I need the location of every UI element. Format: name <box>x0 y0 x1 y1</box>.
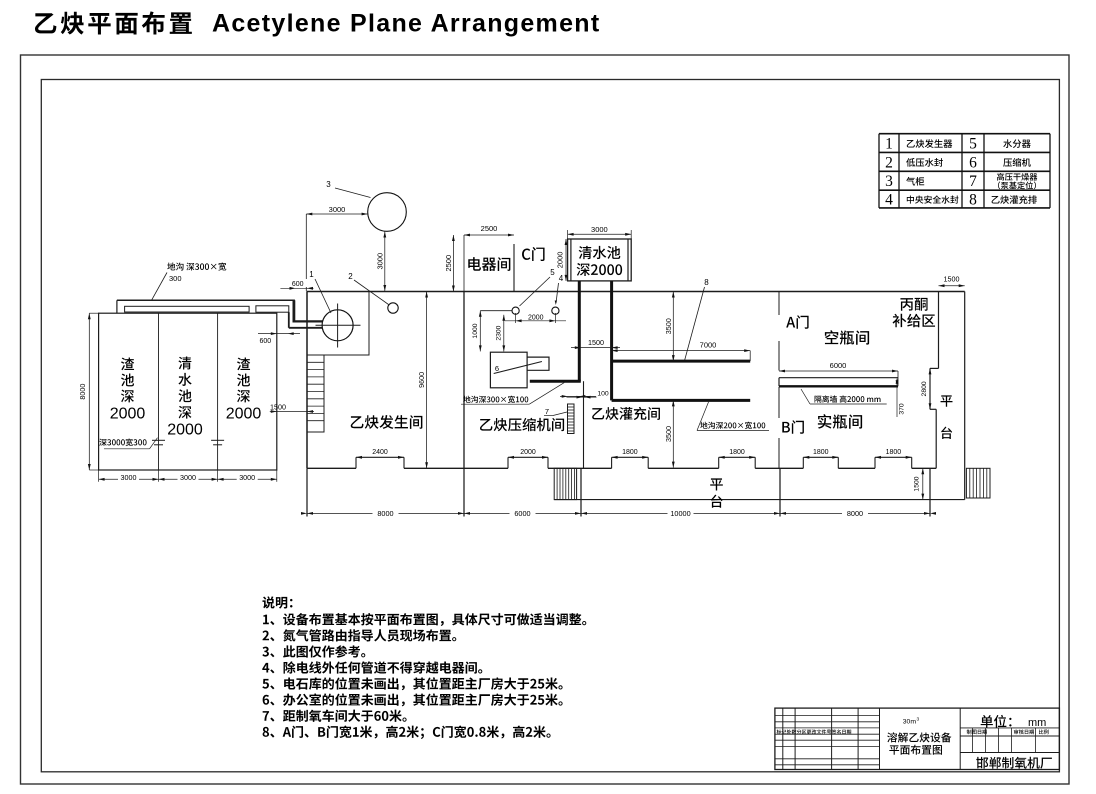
svg-text:mm: mm <box>1028 717 1046 729</box>
svg-text:6: 6 <box>495 364 499 373</box>
svg-text:3: 3 <box>885 173 893 190</box>
svg-text:8: 8 <box>969 192 977 209</box>
svg-text:8: 8 <box>704 278 709 287</box>
svg-text:4: 4 <box>559 274 564 283</box>
svg-text:2000: 2000 <box>528 314 544 321</box>
svg-text:370: 370 <box>899 403 906 415</box>
svg-text:Acetylene Plane Arrangement: Acetylene Plane Arrangement <box>212 10 600 38</box>
svg-text:8000: 8000 <box>377 509 393 518</box>
svg-text:3500: 3500 <box>664 426 673 442</box>
svg-text:2500: 2500 <box>481 224 498 233</box>
svg-text:2000: 2000 <box>556 252 565 269</box>
svg-text:600: 600 <box>259 338 271 345</box>
svg-text:3: 3 <box>326 180 331 189</box>
svg-text:30m: 30m <box>903 718 917 725</box>
svg-text:10000: 10000 <box>670 509 690 518</box>
svg-text:3000: 3000 <box>591 225 608 234</box>
svg-text:6: 6 <box>969 154 977 171</box>
svg-text:2400: 2400 <box>372 449 388 456</box>
svg-text:2: 2 <box>885 154 893 171</box>
svg-text:1800: 1800 <box>729 449 745 456</box>
svg-text:1500: 1500 <box>914 476 921 491</box>
svg-text:5: 5 <box>969 136 977 153</box>
svg-text:3: 3 <box>917 717 920 723</box>
svg-text:1500: 1500 <box>588 338 604 347</box>
svg-text:2000: 2000 <box>167 421 203 438</box>
svg-text:100: 100 <box>597 391 609 398</box>
svg-text:6000: 6000 <box>514 509 530 518</box>
svg-text:300: 300 <box>169 274 182 283</box>
svg-text:7: 7 <box>969 173 977 190</box>
svg-text:3000: 3000 <box>239 473 255 482</box>
svg-text:3000: 3000 <box>180 473 196 482</box>
svg-text:3500: 3500 <box>664 318 673 334</box>
svg-text:4: 4 <box>885 192 893 209</box>
svg-text:1500: 1500 <box>944 275 960 284</box>
svg-text:9600: 9600 <box>417 372 426 388</box>
svg-text:7: 7 <box>545 407 549 416</box>
svg-text:2000: 2000 <box>226 406 262 423</box>
svg-text:1800: 1800 <box>886 449 902 456</box>
svg-text:2000: 2000 <box>520 449 536 456</box>
svg-text:5: 5 <box>550 268 555 277</box>
svg-text:1800: 1800 <box>622 449 638 456</box>
svg-text:1500: 1500 <box>270 403 286 412</box>
svg-text:1: 1 <box>885 136 893 153</box>
svg-text:2300: 2300 <box>495 325 502 340</box>
svg-text:1: 1 <box>309 270 314 279</box>
svg-text:3000: 3000 <box>121 473 137 482</box>
svg-text:3000: 3000 <box>375 253 384 270</box>
svg-text:2000: 2000 <box>110 406 146 423</box>
svg-text:8000: 8000 <box>78 384 87 400</box>
svg-text:8000: 8000 <box>847 509 863 518</box>
svg-text:3000: 3000 <box>329 205 346 214</box>
svg-text:2500: 2500 <box>444 255 453 272</box>
svg-text:600: 600 <box>292 281 304 288</box>
svg-text:7000: 7000 <box>700 341 717 350</box>
svg-text:1800: 1800 <box>813 449 829 456</box>
svg-text:2800: 2800 <box>921 381 928 396</box>
svg-text:1000: 1000 <box>472 323 479 338</box>
svg-text:2: 2 <box>348 272 353 281</box>
svg-text:6000: 6000 <box>830 361 847 370</box>
